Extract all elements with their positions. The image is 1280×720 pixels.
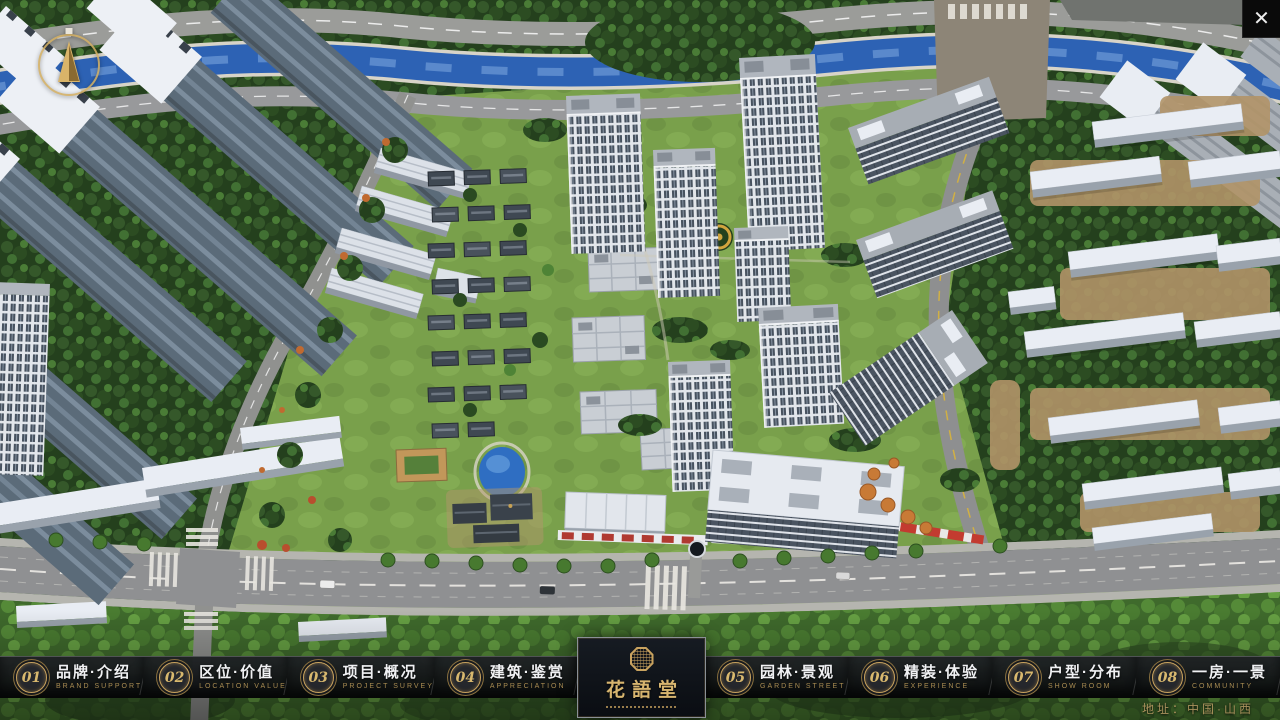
compass-arrow-shade: [69, 45, 79, 81]
nav-label-en: SHOW ROOM: [1048, 683, 1123, 690]
nav-label-zh: 一房·一景: [1192, 665, 1267, 680]
orange-courtyard: [396, 448, 447, 482]
compass-icon: [38, 34, 100, 96]
nav-number-badge: 05: [720, 662, 751, 693]
bottom-nav-left: 01 品牌·介绍BRAND SUPPORT 02 区位·价值LOCATION V…: [0, 656, 577, 698]
compass-north-tip: [66, 28, 73, 34]
nav-item-floorplans[interactable]: 07 户型·分布SHOW ROOM: [992, 656, 1136, 698]
close-button[interactable]: ✕: [1242, 0, 1280, 38]
entrance-plaza: [689, 541, 705, 557]
bottom-nav-right: 05 园林·景观GARDEN STREET 06 精装·体验EXPERIENCE…: [704, 656, 1280, 698]
nav-label-en: BRAND SUPPORT: [56, 683, 142, 690]
nav-item-interior[interactable]: 06 精装·体验EXPERIENCE: [848, 656, 992, 698]
nav-number-badge: 03: [303, 662, 334, 693]
sales-presentation-app: ✕ 01 品牌·介绍BRAND SUPPORT 02 区位·价值LOCATION…: [0, 0, 1280, 720]
nav-label-en: APPRECIATION: [490, 683, 566, 690]
nav-item-architecture[interactable]: 04 建筑·鉴赏APPRECIATION: [434, 656, 577, 698]
clubhouse: [446, 487, 544, 548]
project-name-latin-line: [606, 706, 678, 708]
nav-label-zh: 区位·价值: [199, 665, 287, 680]
nav-label-en: LOCATION VALUE: [199, 683, 287, 690]
project-name: 花語堂: [599, 675, 684, 702]
nav-item-location[interactable]: 02 区位·价值LOCATION VALUE: [143, 656, 287, 698]
nav-number-badge: 08: [1152, 662, 1183, 693]
nav-number-badge: 06: [864, 662, 895, 693]
nav-number-badge: 07: [1008, 662, 1039, 693]
nav-label-zh: 项目·概况: [343, 665, 434, 680]
nav-number-badge: 04: [450, 662, 481, 693]
close-icon: ✕: [1253, 6, 1270, 31]
nav-label-en: EXPERIENCE: [904, 683, 979, 690]
masterplan-3d-view[interactable]: [0, 0, 1280, 720]
nav-number-badge: 02: [159, 662, 190, 693]
nav-label-zh: 精装·体验: [904, 665, 979, 680]
nav-label-zh: 品牌·介绍: [56, 665, 142, 680]
nav-item-brand[interactable]: 01 品牌·介绍BRAND SUPPORT: [0, 656, 143, 698]
project-logo-panel: 花語堂: [577, 637, 706, 718]
nav-label-zh: 建筑·鉴赏: [490, 665, 566, 680]
nav-label-zh: 户型·分布: [1048, 665, 1123, 680]
nav-item-project[interactable]: 03 项目·概况PROJECT SURVEY: [287, 656, 434, 698]
nav-label-en: PROJECT SURVEY: [343, 683, 434, 690]
nav-label-en: GARDEN STREET: [760, 683, 846, 690]
nav-number-badge: 01: [16, 662, 47, 693]
nav-item-garden[interactable]: 05 园林·景观GARDEN STREET: [704, 656, 848, 698]
brand-seal-icon: [630, 647, 654, 671]
project-address: 地址：中国·山西: [1142, 700, 1254, 717]
nav-label-zh: 园林·景观: [760, 665, 846, 680]
nav-label-en: COMMUNITY: [1192, 683, 1267, 690]
nav-item-views[interactable]: 08 一房·一景COMMUNITY: [1136, 656, 1280, 698]
